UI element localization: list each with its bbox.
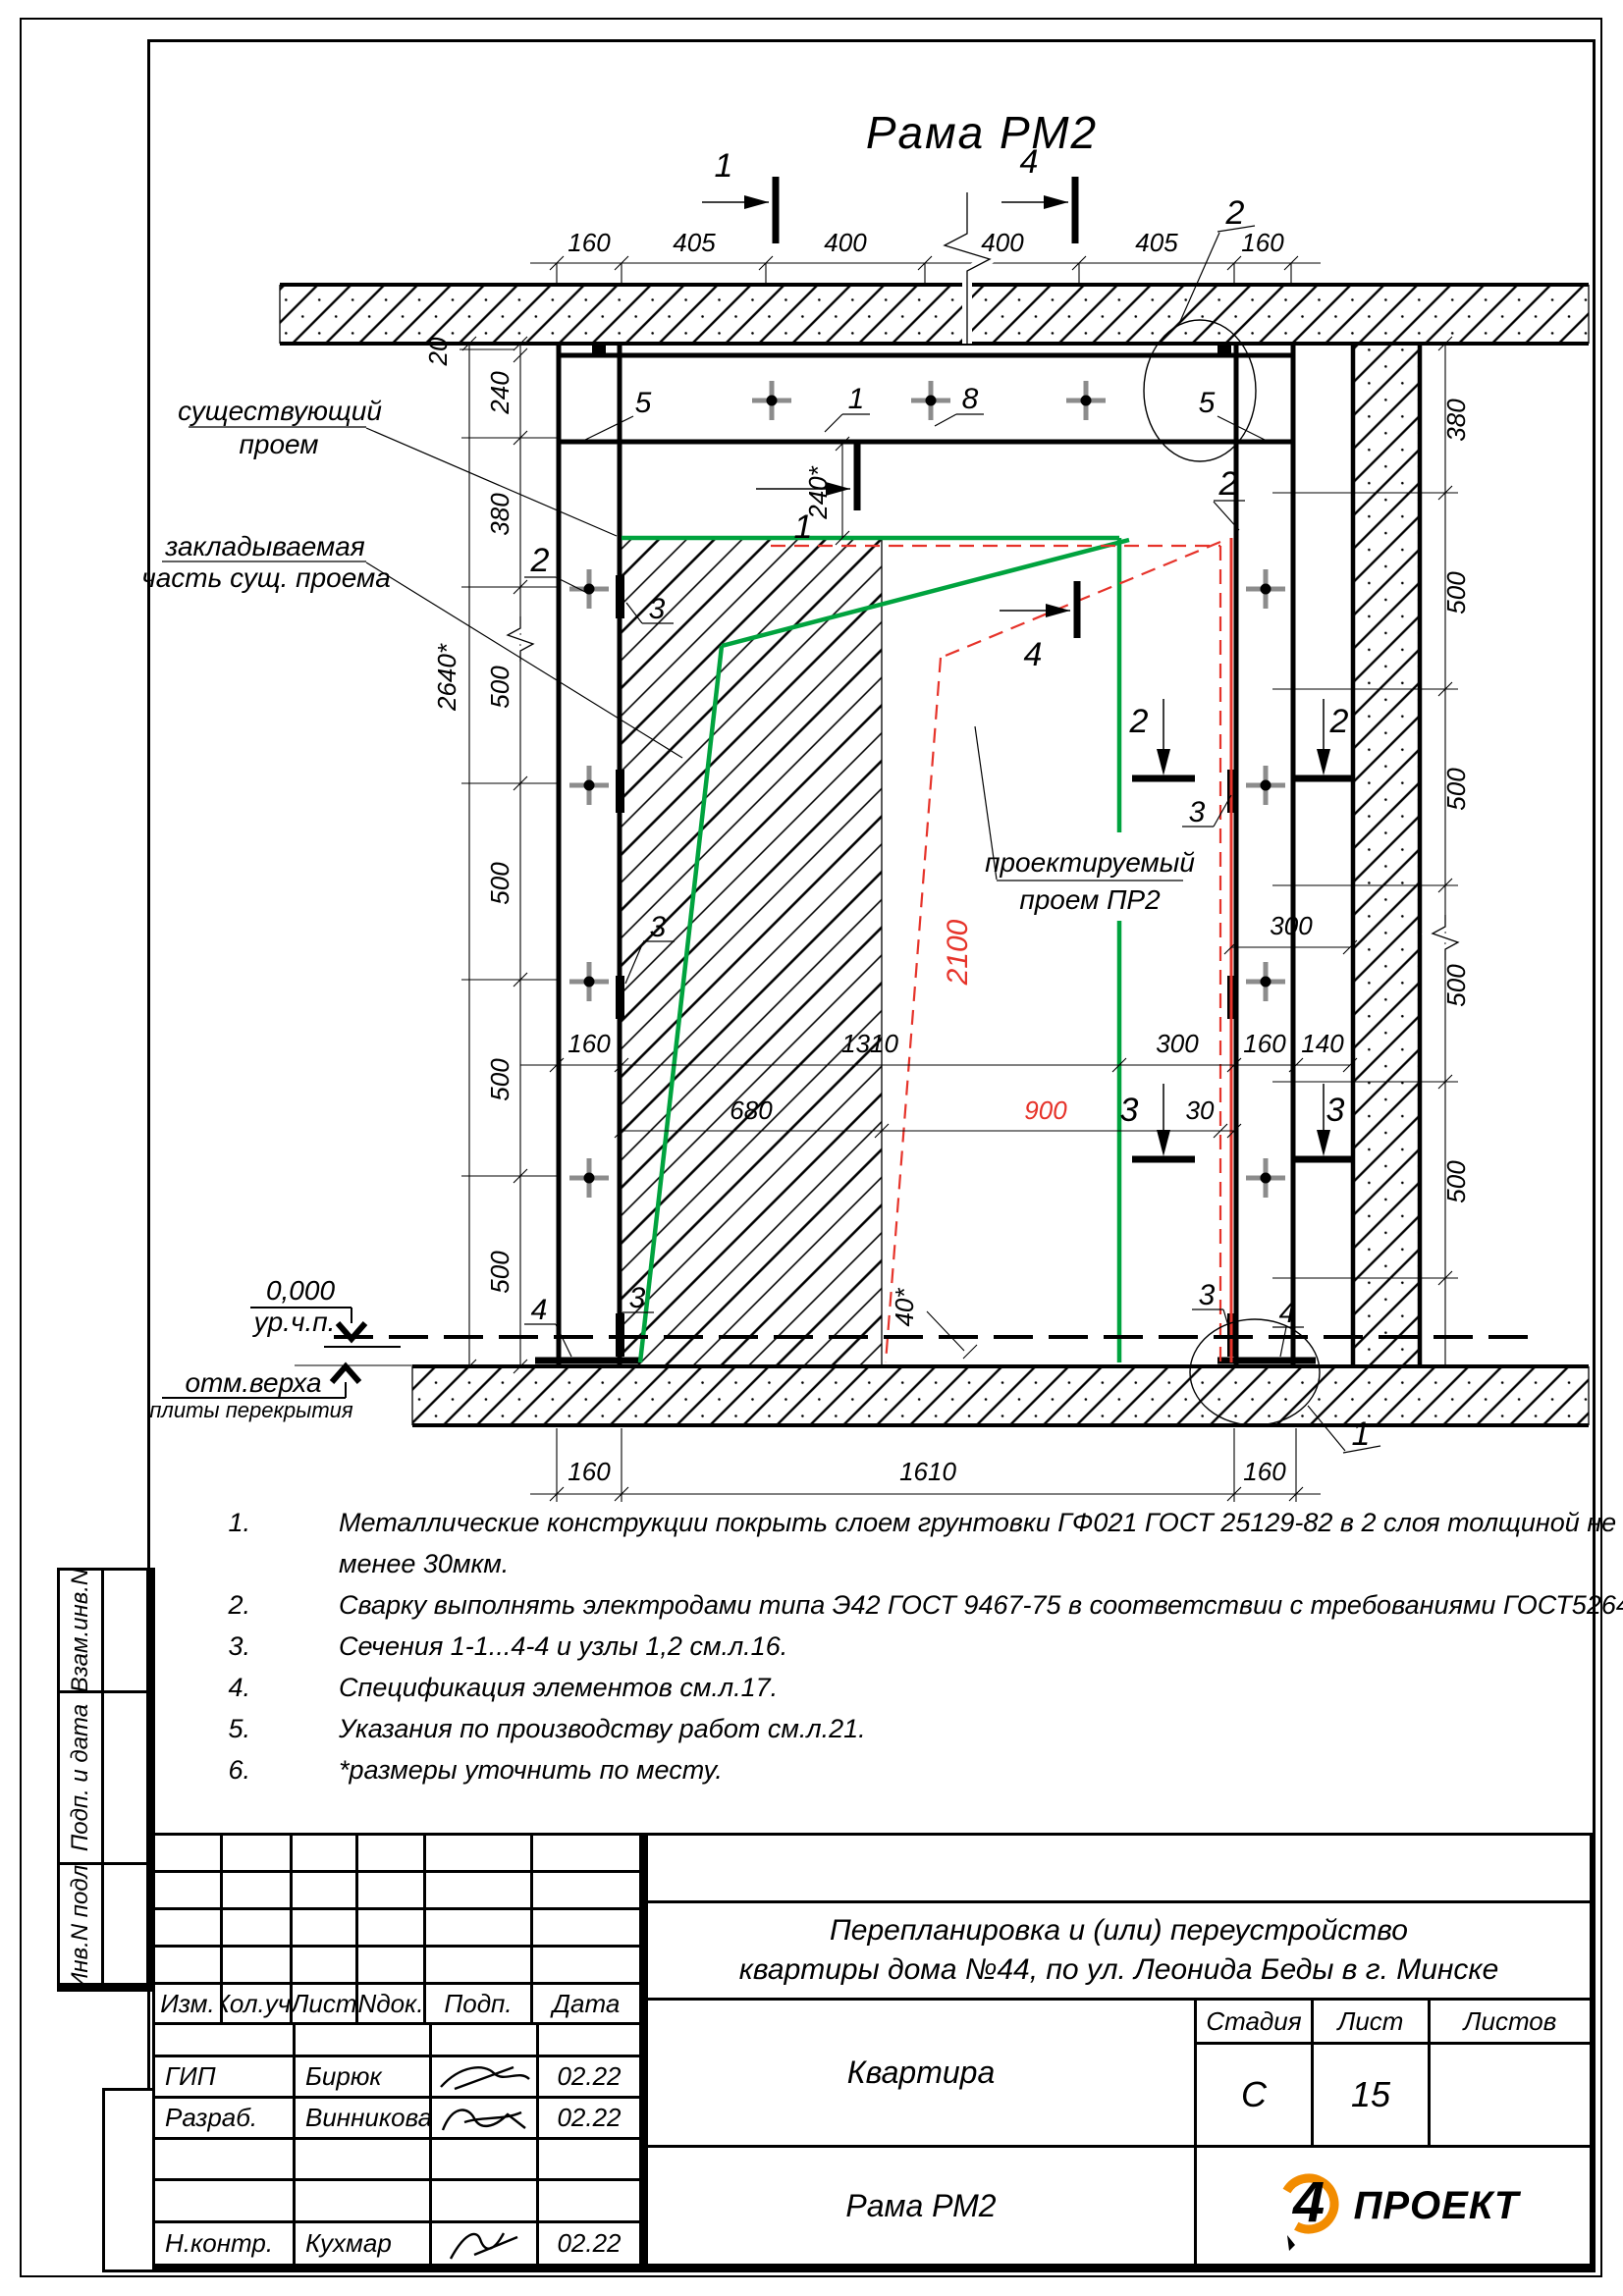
col-list: Лист <box>293 1985 355 2022</box>
project-line-2: квартиры дома №44, по ул. Леонида Беды в… <box>739 1950 1499 1990</box>
stage-header: Стадия <box>1197 2001 1311 2042</box>
col-data: Дата <box>533 1985 639 2022</box>
dim-top-3: 400 <box>981 228 1024 257</box>
bottom-slab <box>412 1366 1589 1425</box>
note-3-text: Сечения 1-1...4-4 и узлы 1,2 см.л.16. <box>339 1631 787 1662</box>
beam-mark-5L: 5 <box>635 387 652 419</box>
beam-mark-1: 1 <box>848 383 865 415</box>
dimension-texts: 160 405 400 400 405 160 20 240 380 500 5… <box>423 228 1471 1486</box>
dim-40-star: 40* <box>890 1288 919 1327</box>
logo-mark: 4 <box>1268 2159 1352 2253</box>
dim-row1-1310: 1310 <box>841 1029 898 1058</box>
sidebar-box-inv: Инв.N подл. <box>60 1865 101 1983</box>
dim-top-2: 400 <box>824 228 867 257</box>
right-wall <box>1353 344 1420 1366</box>
doc-designation-cell <box>648 1836 1590 1900</box>
sidebar-label-inv: Инв.N подл. <box>67 1865 94 1983</box>
stage-value: С <box>1197 2045 1311 2145</box>
note-6-text: *размеры уточнить по месту. <box>339 1755 723 1786</box>
plate-3-b: 3 <box>650 911 667 943</box>
label-infill-1: закладываемая <box>164 531 365 561</box>
section-4-mid: 4 <box>1024 636 1043 673</box>
date-razrab: 02.22 <box>539 2099 639 2137</box>
dim-left-240: 240 <box>485 371 514 415</box>
dim-bottom-160b: 160 <box>1243 1457 1286 1486</box>
signature-razrab <box>432 2099 536 2137</box>
company-logo: 4 ПРОЕКТ <box>1197 2148 1590 2264</box>
date-gip: 02.22 <box>539 2057 639 2096</box>
beam-mark-5R: 5 <box>1199 387 1216 419</box>
label-designed-opening-1: проектируемый <box>985 847 1195 878</box>
section-3-left: 3 <box>1120 1092 1139 1129</box>
sidebar-label-vzam: Взам.инв.N <box>67 1571 94 1690</box>
sheets-value <box>1431 2045 1590 2145</box>
sidebar-box-inv-empty <box>104 1865 146 1983</box>
plate-3-c: 3 <box>1189 796 1206 828</box>
logo-number: 4 <box>1291 2170 1324 2234</box>
infill-hatch-area <box>622 538 882 1366</box>
note-3-num: 3. <box>191 1631 250 1662</box>
dim-bottom-1610: 1610 <box>899 1457 956 1486</box>
plate-3-a: 3 <box>649 593 666 625</box>
sidebar-box-podp: Подп. и дата <box>60 1693 101 1862</box>
note-1-text: Металлические конструкции покрыть слоем … <box>339 1508 1616 1538</box>
dim-top-0: 160 <box>568 228 611 257</box>
label-level-top-sub: плиты перекрытия <box>149 1398 353 1422</box>
dim-2100-red: 2100 <box>942 919 974 986</box>
dim-right-500c: 500 <box>1441 964 1471 1007</box>
sidebar-box-podp-empty <box>104 1693 146 1862</box>
note-5-num: 5. <box>191 1714 250 1744</box>
sheets-header: Листов <box>1431 2001 1590 2042</box>
sidebar-stamp-boxes: Взам.инв.N Подп. и дата Инв.N подл. <box>57 1568 155 1992</box>
object-name: Квартира <box>648 2001 1194 2145</box>
note-2-text: Сварку выполнять электродами типа Э42 ГО… <box>339 1590 1623 1621</box>
beam-mark-8: 8 <box>962 383 979 415</box>
dim-right-380: 380 <box>1441 399 1471 442</box>
frame-elevation-drawing: существующий проем закладываемая часть с… <box>0 0 1623 1531</box>
project-description: Перепланировка и (или) переустройство кв… <box>648 1903 1590 1998</box>
project-line-1: Перепланировка и (или) переустройство <box>830 1911 1408 1950</box>
dim-row2-680: 680 <box>730 1095 773 1125</box>
label-designed-opening-2: проем ПР2 <box>1019 884 1161 915</box>
section-1-top: 1 <box>715 147 733 185</box>
dim-right-500d: 500 <box>1441 1160 1471 1203</box>
signature-table: ГИП Бирюк 02.22 Разраб. Винникова 02.22 … <box>152 2025 654 2269</box>
name-nkontr: Кухмар <box>296 2223 429 2264</box>
role-nkontr: Н.контр. <box>155 2223 293 2264</box>
section-3-right: 3 <box>1326 1092 1345 1129</box>
dim-left-20: 20 <box>423 337 453 366</box>
note-1-text-wrap: менее 30мкм. <box>339 1549 509 1579</box>
dim-right-500b: 500 <box>1441 768 1471 811</box>
col-ndok: Nдок. <box>358 1985 423 2022</box>
top-slab <box>280 285 1589 344</box>
label-level-zero: 0,000 <box>266 1275 335 1306</box>
dim-row1-160b: 160 <box>1243 1029 1286 1058</box>
logo-text: ПРОЕКТ <box>1354 2184 1520 2228</box>
date-nkontr: 02.22 <box>539 2223 639 2264</box>
dim-right-500a: 500 <box>1441 571 1471 614</box>
dim-bottom-160a: 160 <box>568 1457 611 1486</box>
name-razrab: Винникова <box>296 2099 429 2137</box>
dim-left-380: 380 <box>485 493 514 536</box>
plate-3-e: 3 <box>1199 1279 1216 1311</box>
name-gip: Бирюк <box>296 2057 429 2096</box>
note-5-text: Указания по производству работ см.л.21. <box>339 1714 866 1744</box>
dim-300-right: 300 <box>1270 911 1313 940</box>
titleblock-right: Перепланировка и (или) переустройство кв… <box>648 1833 1593 2272</box>
dim-left-500b: 500 <box>485 862 514 905</box>
label-infill-2: часть сущ. проема <box>141 562 391 593</box>
col-podp: Подп. <box>426 1985 530 2022</box>
sheet-value: 15 <box>1314 2045 1428 2145</box>
dim-row1-300: 300 <box>1156 1029 1199 1058</box>
plate-3-d: 3 <box>629 1282 646 1314</box>
col-izm: Изм. <box>155 1985 220 2022</box>
section-2-right: 2 <box>1329 703 1349 740</box>
note-4-text: Спецификация элементов см.л.17. <box>339 1673 778 1703</box>
dim-top-1: 405 <box>673 228 716 257</box>
node-2-top: 2 <box>1225 194 1245 232</box>
note-1-num: 1. <box>191 1508 250 1538</box>
note-2-num: 2. <box>191 1590 250 1621</box>
role-gip: ГИП <box>155 2057 293 2096</box>
sidebar-box-vzam-empty <box>104 1571 146 1690</box>
drawing-sheet: Рама РМ2 <box>0 0 1623 2296</box>
dim-row1-160a: 160 <box>568 1029 611 1058</box>
label-existing-opening-2: проем <box>239 429 318 459</box>
plate-4-b: 4 <box>1279 1297 1296 1329</box>
document-name: Рама РМ2 <box>648 2148 1194 2264</box>
label-existing-opening-1: существующий <box>178 396 382 426</box>
label-level-top: отм.верха <box>185 1367 321 1398</box>
sidebar-extra-box <box>102 2088 155 2272</box>
section-2-left: 2 <box>1129 703 1149 740</box>
revision-table: Изм. Кол.уч. Лист Nдок. Подп. Дата <box>152 1833 654 2031</box>
dim-top-5: 160 <box>1241 228 1284 257</box>
dim-row2-900-red: 900 <box>1024 1095 1067 1125</box>
plate-4-a: 4 <box>531 1294 548 1326</box>
signature-nkontr <box>432 2223 536 2264</box>
section-1-mid: 1 <box>794 508 813 546</box>
sidebar-box-vzam: Взам.инв.N <box>60 1571 101 1690</box>
sheet-header: Лист <box>1314 2001 1428 2042</box>
node-2-leftcol: 2 <box>530 542 550 579</box>
signature-gip <box>432 2057 536 2096</box>
note-4-num: 4. <box>191 1673 250 1703</box>
section-4-top: 4 <box>1020 143 1039 181</box>
label-level-zero-sub: ур.ч.п. <box>252 1307 336 1337</box>
node-1-bottom: 1 <box>1352 1415 1371 1453</box>
node-2-rightcol: 2 <box>1218 465 1238 503</box>
sidebar-label-podp: Подп. и дата <box>67 1704 94 1851</box>
col-koluch: Кол.уч. <box>223 1985 290 2022</box>
dim-left-total: 2640* <box>432 643 461 712</box>
dim-row2-30: 30 <box>1186 1095 1215 1125</box>
dim-left-500a: 500 <box>485 666 514 709</box>
role-razrab: Разраб. <box>155 2099 293 2137</box>
dim-left-500d: 500 <box>485 1251 514 1294</box>
dim-row1-140: 140 <box>1301 1029 1344 1058</box>
note-6-num: 6. <box>191 1755 250 1786</box>
dim-left-500c: 500 <box>485 1058 514 1101</box>
dim-top-4: 405 <box>1135 228 1178 257</box>
